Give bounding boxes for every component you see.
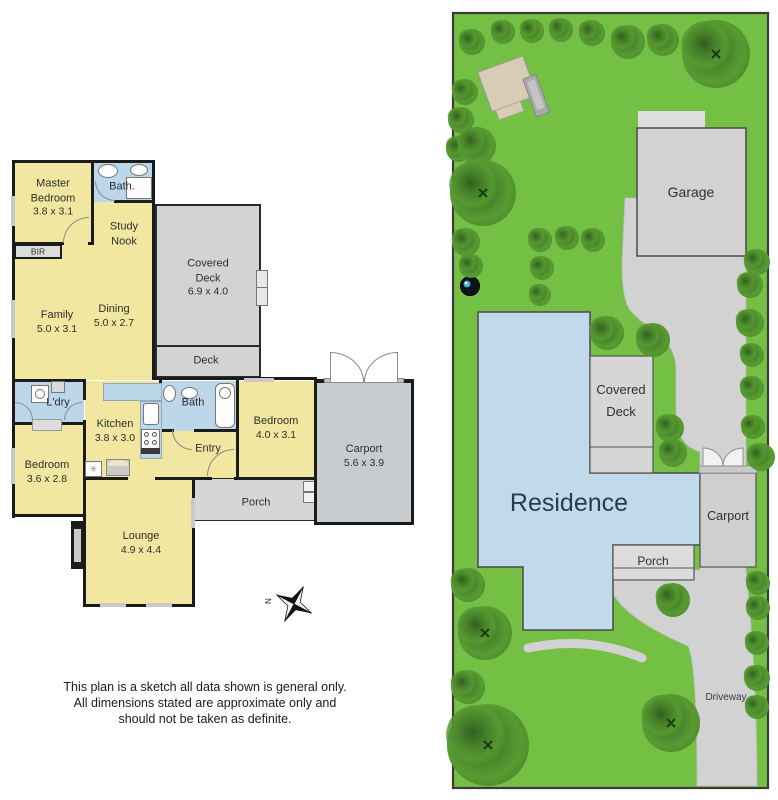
wall-segment xyxy=(191,498,195,528)
site-carport-threshold xyxy=(699,466,757,473)
tree-canopy xyxy=(491,20,508,37)
deck-step xyxy=(256,270,268,306)
tree-canopy xyxy=(451,671,475,695)
ldry-step xyxy=(32,419,62,431)
wall-segment xyxy=(234,477,317,480)
label-family: Family5.0 x 3.1 xyxy=(37,308,77,336)
tree-canopy xyxy=(740,376,757,393)
tree-canopy xyxy=(746,571,763,588)
washing-machine xyxy=(51,381,65,393)
trough-bowl xyxy=(35,389,45,399)
tree-canopy xyxy=(528,228,545,245)
tree-canopy xyxy=(656,584,680,608)
water-tank xyxy=(461,277,480,296)
wall-segment xyxy=(83,477,128,480)
stove-burner xyxy=(152,440,157,445)
label-garage: Garage xyxy=(668,184,715,200)
compass-north-arrow: N xyxy=(256,578,328,634)
label-bir: BIR xyxy=(31,246,45,257)
tree-canopy xyxy=(737,272,756,291)
wall-segment xyxy=(12,422,32,425)
tree-canopy xyxy=(659,439,679,459)
label-master-bedroom: MasterBedroom3.8 x 3.1 xyxy=(31,177,76,220)
tree-canopy xyxy=(452,228,472,248)
label-kitchen: Kitchen3.8 x 3.0 xyxy=(95,417,135,445)
label-bath2: Bath xyxy=(182,396,205,411)
tree-canopy xyxy=(452,79,471,98)
site-plan: Garage Covered Deck Residence Carport Po… xyxy=(440,0,778,800)
chimney-inner xyxy=(74,529,81,562)
wall-segment xyxy=(236,380,239,480)
tree-canopy xyxy=(744,249,763,268)
wall-segment xyxy=(11,448,15,484)
label-site-covered-deck: Covered xyxy=(596,382,645,397)
compass-n-label: N xyxy=(264,598,273,604)
wall-segment xyxy=(100,603,126,607)
tree-canopy xyxy=(579,20,598,39)
wall-segment xyxy=(62,422,86,425)
carport-door-left xyxy=(330,352,364,382)
garage-apron xyxy=(638,111,705,128)
label-bedroom3: Bedroom3.6 x 2.8 xyxy=(25,458,70,486)
deck-step-line xyxy=(256,287,268,288)
wall-segment xyxy=(114,200,155,203)
bathtub-inner xyxy=(219,387,231,399)
wall-segment xyxy=(12,379,86,382)
tree-canopy xyxy=(681,21,730,70)
water-tank-glint xyxy=(464,281,471,288)
basin xyxy=(98,164,118,178)
tree-canopy xyxy=(747,443,767,463)
wall-segment xyxy=(12,160,155,163)
tree-canopy xyxy=(641,695,683,737)
label-site-covered-deck2: Deck xyxy=(606,404,636,419)
label-ldry: L'dry xyxy=(46,396,70,411)
tree-canopy xyxy=(458,128,485,155)
label-site-carport: Carport xyxy=(707,509,749,523)
kitchen-bench xyxy=(103,383,162,401)
wall-segment xyxy=(152,377,317,380)
label-driveway: Driveway xyxy=(705,692,746,703)
tree-canopy xyxy=(636,324,660,348)
tree-canopy xyxy=(740,343,757,360)
wall-segment xyxy=(91,160,94,245)
tree-canopy xyxy=(741,415,758,432)
toilet xyxy=(163,385,176,402)
wall-segment xyxy=(411,380,414,525)
hall-bench-top xyxy=(108,460,128,466)
wall-segment xyxy=(314,522,414,525)
floor-plan: ✳ MasterBedroom3.8 x 3.1 Bath. StudyNook… xyxy=(0,0,440,800)
tree-canopy xyxy=(459,254,476,271)
wall-segment xyxy=(11,300,15,338)
wall-segment xyxy=(146,603,172,607)
wall-segment xyxy=(314,380,317,525)
tree-canopy xyxy=(581,228,598,245)
stove-burner xyxy=(144,440,149,445)
label-site-porch: Porch xyxy=(637,554,668,568)
label-residence: Residence xyxy=(510,489,628,517)
tree-canopy xyxy=(529,284,545,300)
tree-canopy xyxy=(449,161,497,209)
tree-canopy xyxy=(530,256,547,273)
tree-canopy xyxy=(744,665,763,684)
heater-unit: ✳ xyxy=(85,461,102,477)
label-carport: Carport5.6 x 3.9 xyxy=(344,442,384,470)
label-porch: Porch xyxy=(242,496,271,511)
tree-canopy xyxy=(549,18,566,35)
wall-segment xyxy=(192,477,195,607)
floorplan-sheet: ✳ MasterBedroom3.8 x 3.1 Bath. StudyNook… xyxy=(0,0,778,800)
stove-burner xyxy=(144,432,149,437)
tree-canopy xyxy=(451,569,475,593)
stove-burner xyxy=(152,432,157,437)
disclaimer-text: This plan is a sketch all data shown is … xyxy=(30,679,380,727)
toilet xyxy=(130,164,148,176)
tree-canopy xyxy=(746,596,763,613)
wall-segment xyxy=(12,242,64,245)
tree-canopy xyxy=(520,19,537,36)
tree-canopy xyxy=(745,631,762,648)
wall-segment xyxy=(11,196,15,226)
tree-canopy xyxy=(590,317,614,341)
label-dining: Dining5.0 x 2.7 xyxy=(94,302,134,330)
label-entry: Entry xyxy=(195,442,221,457)
wall-segment xyxy=(152,160,155,380)
wall-segment xyxy=(12,514,86,517)
label-study-nook: StudyNook xyxy=(110,219,138,248)
label-bedroom2: Bedroom4.0 x 3.1 xyxy=(254,414,299,442)
label-lounge: Lounge4.9 x 4.4 xyxy=(121,529,161,557)
tree-canopy xyxy=(656,414,676,434)
wall-segment xyxy=(155,477,212,480)
carport-door-right xyxy=(364,352,398,382)
tree-canopy xyxy=(457,607,496,646)
tree-canopy xyxy=(555,226,572,243)
tree-canopy xyxy=(448,107,467,126)
kitchen-sink xyxy=(143,403,159,425)
wall-segment xyxy=(244,378,274,382)
tree-canopy xyxy=(745,695,762,712)
wall-segment xyxy=(83,380,86,400)
stove-base xyxy=(141,448,160,454)
tree-canopy xyxy=(459,29,478,48)
label-bath-top: Bath. xyxy=(109,180,135,195)
wall-segment xyxy=(194,429,239,432)
tree-canopy xyxy=(736,309,756,329)
tree-canopy xyxy=(611,26,635,50)
label-deck: Deck xyxy=(193,354,218,369)
label-covered-deck: CoveredDeck6.9 x 4.0 xyxy=(187,257,229,300)
tree-canopy xyxy=(446,705,505,764)
tree-canopy xyxy=(647,24,670,47)
